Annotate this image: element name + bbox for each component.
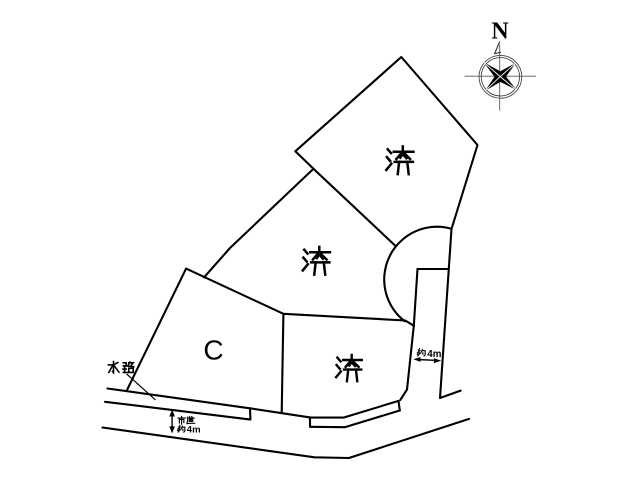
- svg-text:N: N: [491, 18, 509, 44]
- svg-text:4m: 4m: [187, 425, 201, 436]
- svg-text:4m: 4m: [427, 349, 441, 360]
- svg-text:C: C: [203, 335, 223, 366]
